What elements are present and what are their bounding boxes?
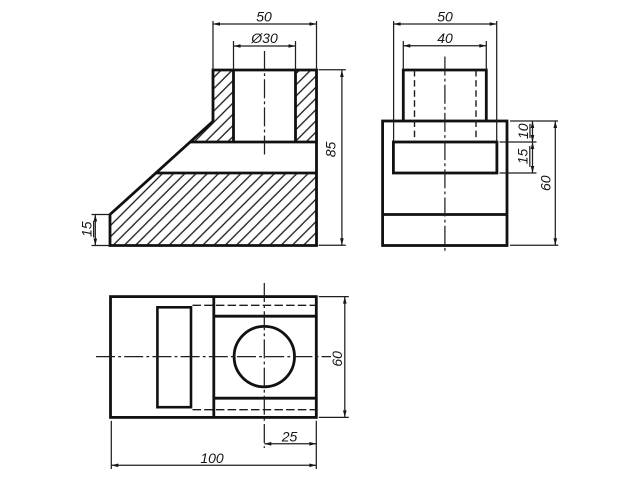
svg-text:85: 85 (323, 142, 339, 158)
svg-text:50: 50 (256, 9, 272, 25)
svg-text:100: 100 (200, 450, 224, 466)
svg-text:10: 10 (515, 123, 531, 139)
svg-text:15: 15 (78, 221, 94, 237)
svg-text:15: 15 (515, 149, 531, 165)
svg-text:40: 40 (437, 30, 453, 46)
svg-text:60: 60 (329, 351, 345, 367)
svg-text:Ø30: Ø30 (250, 30, 278, 46)
svg-text:25: 25 (281, 428, 298, 444)
svg-text:60: 60 (538, 175, 554, 191)
svg-text:50: 50 (437, 9, 453, 25)
